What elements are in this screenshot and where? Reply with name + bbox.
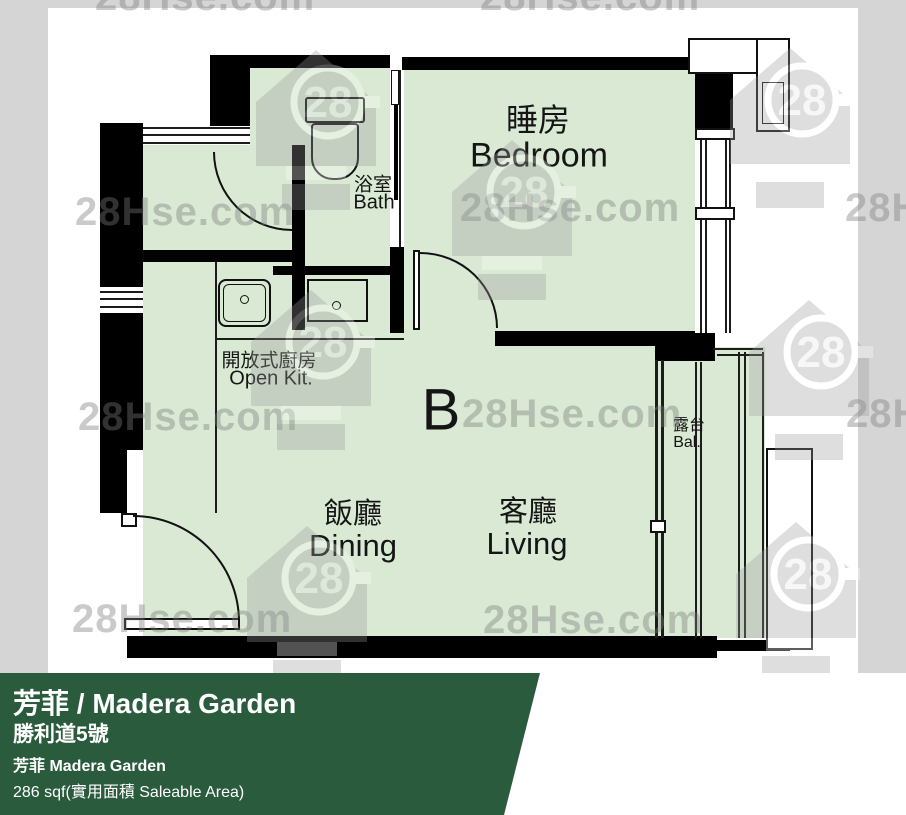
estate-title: 芳菲 / Madera Garden <box>13 682 296 722</box>
balcony-line <box>744 352 746 638</box>
room-label-balcony-zh: 露台 <box>673 411 705 435</box>
sliding-door-track <box>399 70 401 247</box>
wall-segment <box>100 450 127 513</box>
balcony-line <box>700 362 702 638</box>
balcony-line <box>738 352 740 638</box>
sink-drain-icon <box>240 295 249 304</box>
room-label-kitchen-en: Open Kit. <box>229 368 312 391</box>
window-line <box>143 142 250 144</box>
window-line <box>143 127 250 129</box>
wall-segment <box>655 331 715 361</box>
wall-segment <box>390 247 404 333</box>
footer-green-panel: 芳菲 / Madera Garden 勝利道5號 芳菲 Madera Garde… <box>0 673 906 815</box>
window-line <box>100 291 143 293</box>
flue-inner <box>762 82 784 124</box>
window-sill <box>695 128 735 140</box>
room-balcony <box>655 347 765 638</box>
window-line <box>705 128 707 333</box>
footer-bar: 芳菲 / Madera Garden 勝利道5號 芳菲 Madera Garde… <box>0 673 906 815</box>
window-line <box>725 128 727 333</box>
sliding-door-panel <box>394 105 398 200</box>
balcony-line <box>762 352 764 638</box>
wall-segment <box>292 145 305 330</box>
balcony-line <box>713 348 763 350</box>
sliding-door-jamb <box>391 70 399 105</box>
wall-segment <box>273 266 404 275</box>
toilet-cistern <box>305 97 365 123</box>
room-label-living-zh: 客廳 <box>499 488 557 530</box>
balcony-door-line <box>655 360 658 638</box>
balcony-door-jamb <box>650 520 666 533</box>
estate-address: 勝利道5號 <box>13 718 109 748</box>
room-label-living-en: Living <box>487 526 568 562</box>
frame-right <box>858 0 906 673</box>
window-line <box>143 134 250 136</box>
balcony-door-line <box>661 360 664 638</box>
toilet-bowl <box>311 123 359 180</box>
room-label-dining-en: Dining <box>309 528 397 564</box>
room-label-balcony-en: Bal. <box>673 434 701 452</box>
ac-platform <box>766 448 813 650</box>
wall-segment <box>127 636 717 658</box>
window-line <box>100 298 143 300</box>
balcony-line <box>695 362 697 638</box>
window-line <box>729 128 731 333</box>
room-label-bedroom-en: Bedroom <box>470 137 608 176</box>
unit-label: B <box>422 377 461 444</box>
window-line <box>700 128 702 333</box>
frame-left <box>0 0 48 673</box>
floorplan-page: 睡房 Bedroom 浴室 Bath 開放式廚房 Open Kit. B 飯廳 … <box>0 0 906 815</box>
window-sill <box>695 207 735 220</box>
room-label-bath-en: Bath <box>353 192 394 215</box>
frame-top <box>0 0 906 8</box>
room-label-dining-zh: 飯廳 <box>324 490 382 532</box>
kitchen-zone-line <box>215 338 404 340</box>
counter-drain-icon <box>332 301 341 310</box>
wall-segment <box>143 250 305 262</box>
svg-text:28: 28 <box>797 328 846 377</box>
wall-segment <box>402 57 695 70</box>
kitchen-zone-line <box>215 262 217 513</box>
wall-segment <box>210 55 250 126</box>
window-line <box>100 306 143 308</box>
room-label-bedroom-zh: 睡房 <box>506 95 570 141</box>
wall-segment <box>250 55 390 68</box>
bedroom-door-leaf <box>413 250 420 330</box>
balcony-line <box>717 354 763 356</box>
estate-area: 286 sqf(實用面積 Saleable Area) <box>13 778 244 802</box>
estate-subtitle: 芳菲 Madera Garden <box>13 752 166 776</box>
